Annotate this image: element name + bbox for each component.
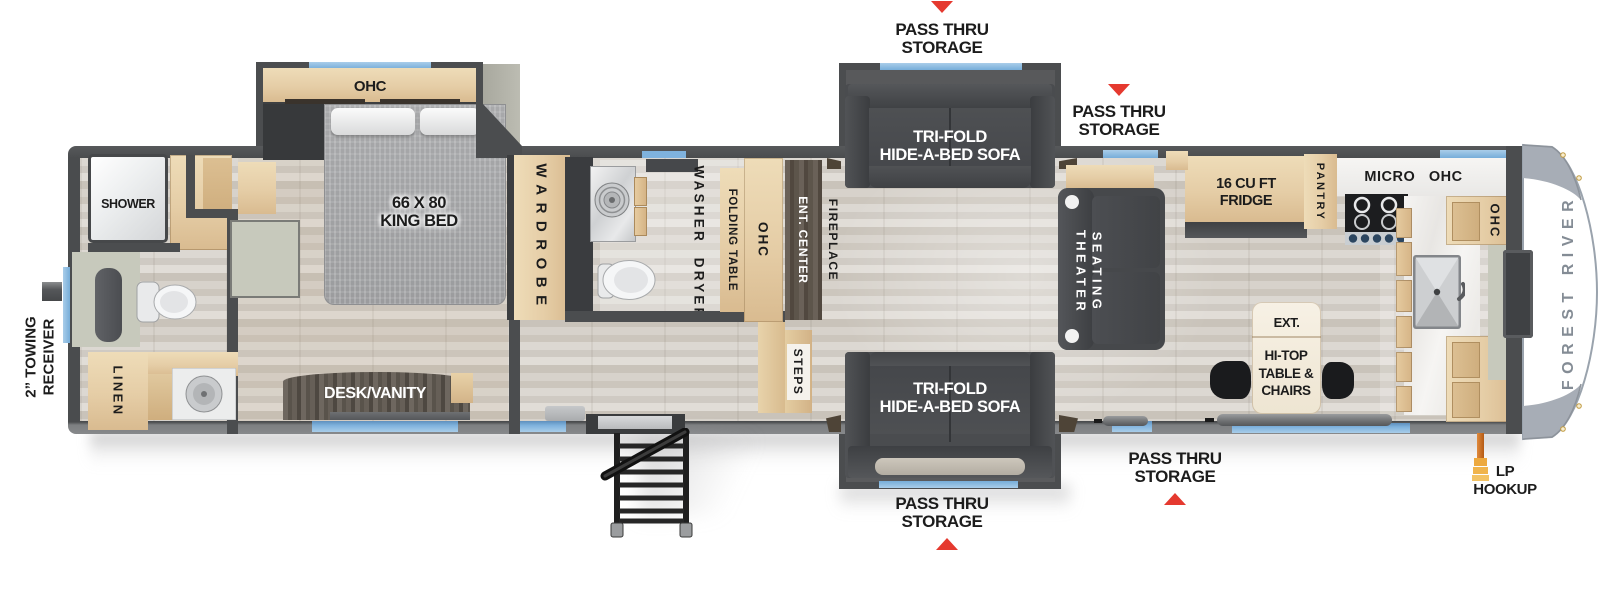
svg-text:FOREST RIVER: FOREST RIVER (1560, 194, 1577, 390)
